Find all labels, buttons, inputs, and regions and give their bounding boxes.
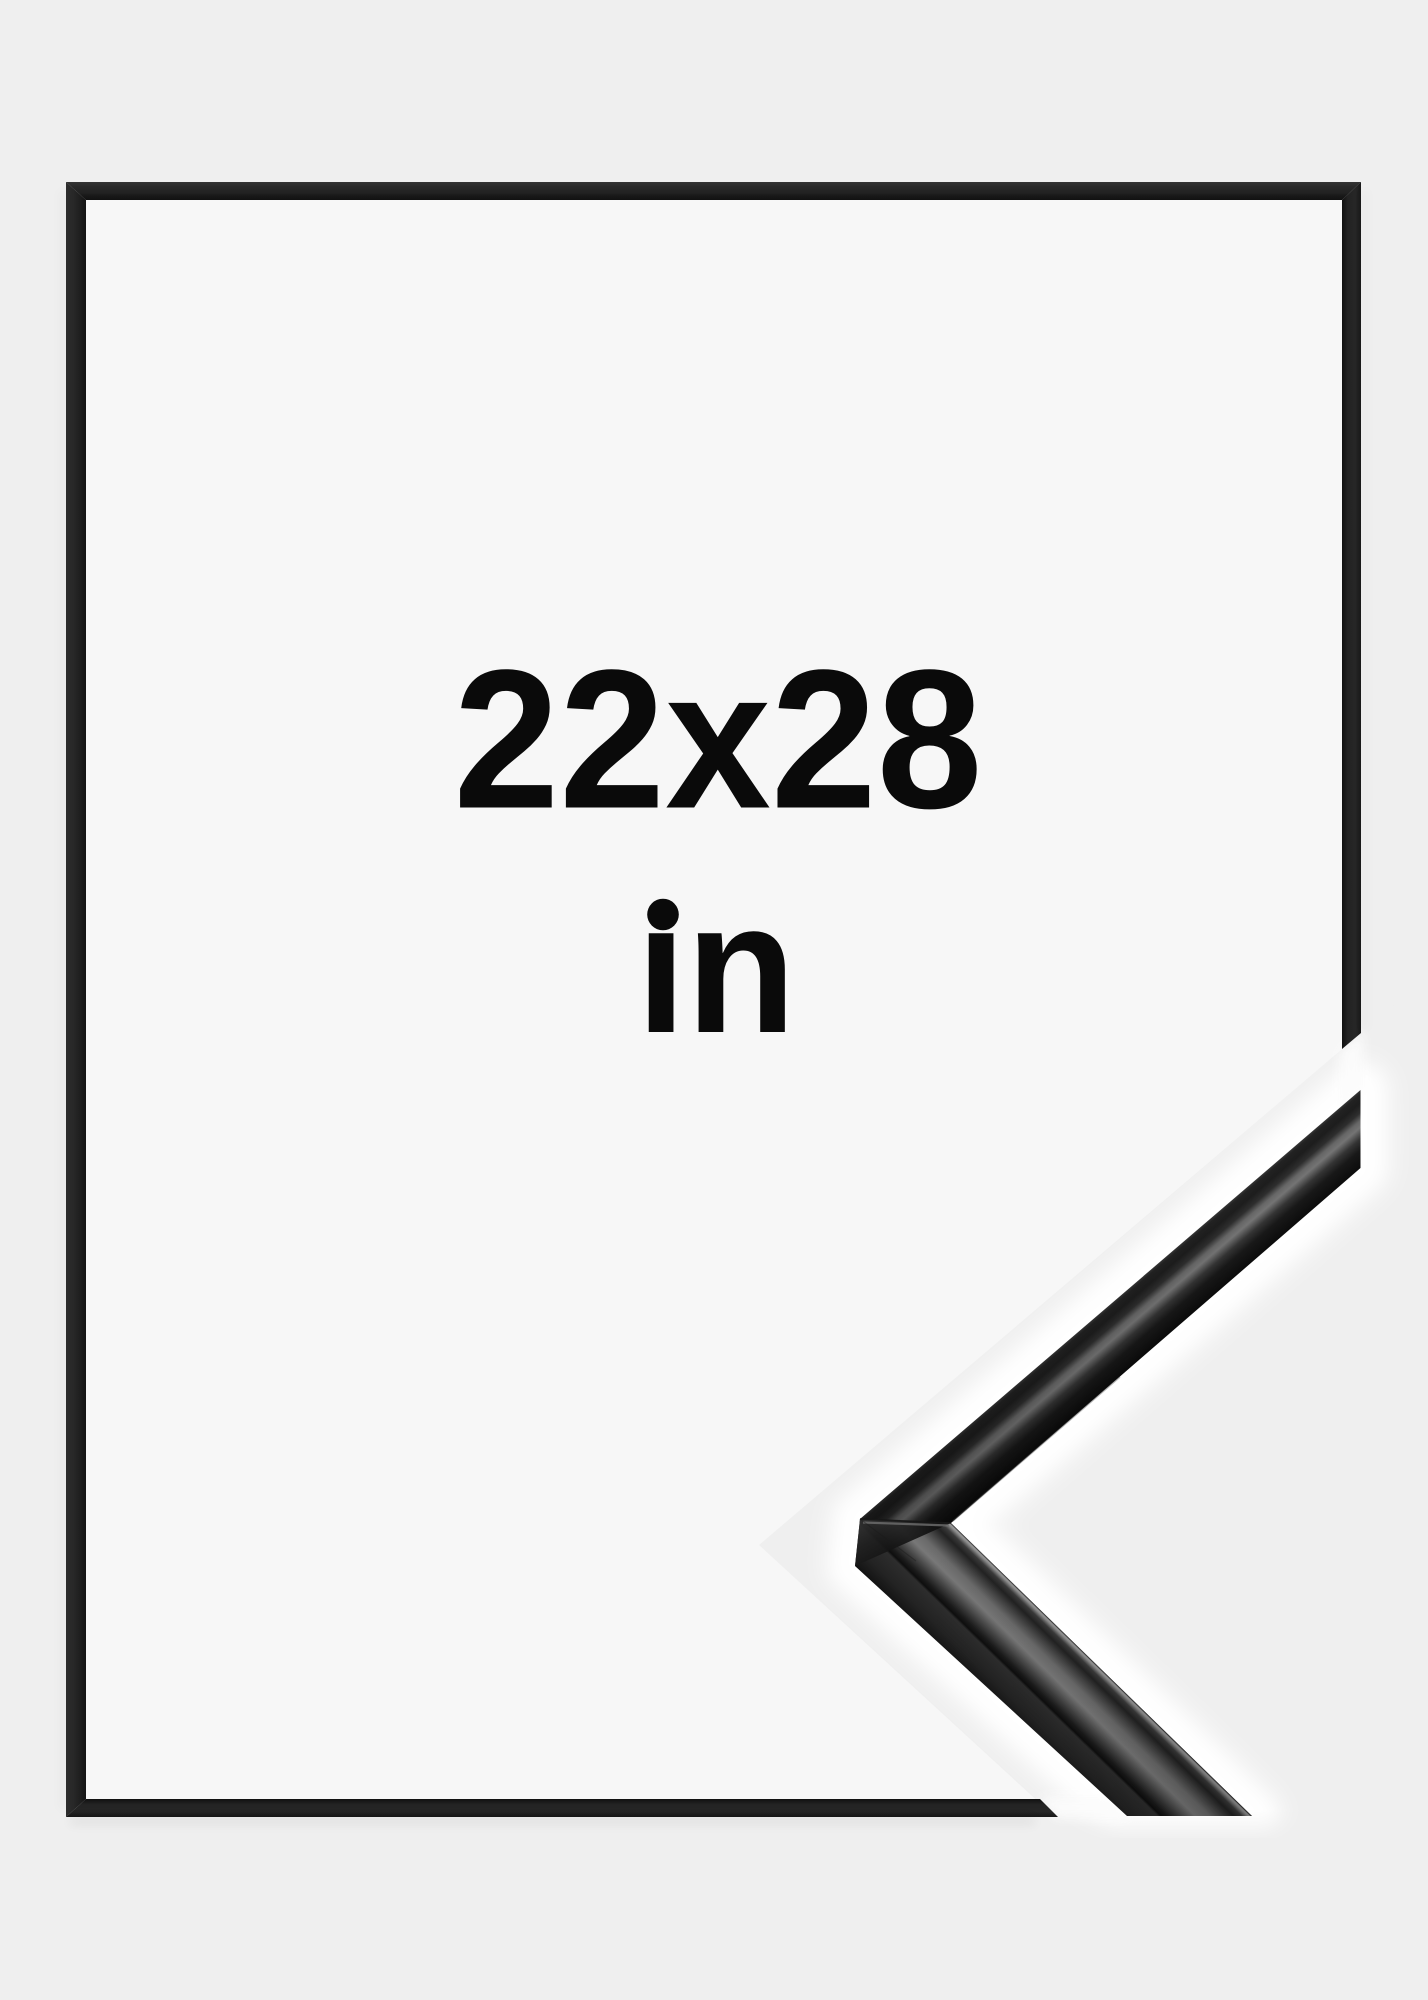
svg-text:22x28: 22x28 bbox=[454, 629, 983, 850]
svg-text:ın: ın bbox=[636, 863, 796, 1072]
